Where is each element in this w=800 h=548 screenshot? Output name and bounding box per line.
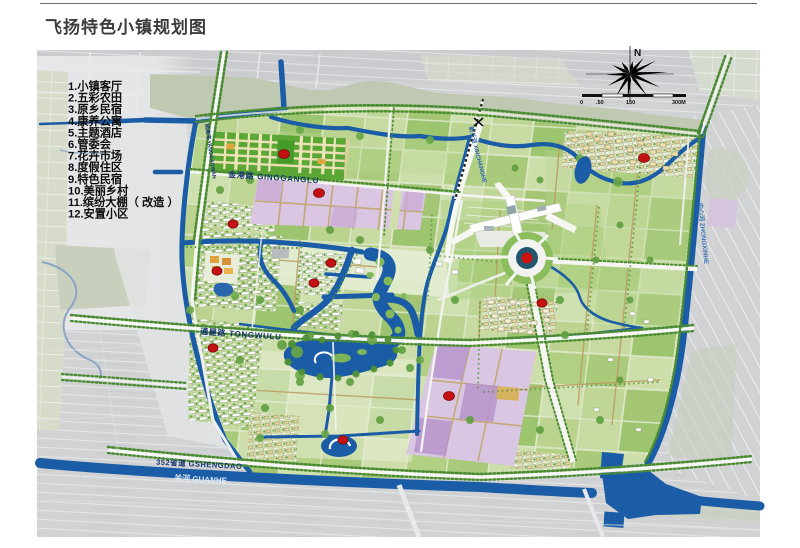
svg-text:10.美丽乡村: 10.美丽乡村: [68, 183, 129, 197]
svg-text:9.特色民宿: 9.特色民宿: [68, 172, 122, 186]
svg-text:N: N: [634, 48, 641, 59]
svg-text:150: 150: [626, 100, 635, 106]
svg-text:4.康养公寓: 4.康养公寓: [68, 114, 122, 128]
svg-text:12.安置小区: 12.安置小区: [68, 207, 128, 221]
svg-text:11.缤纷大棚（ 改造 ）: 11.缤纷大棚（ 改造 ）: [68, 195, 179, 209]
svg-text:0: 0: [580, 100, 583, 106]
svg-text:.50: .50: [596, 100, 604, 106]
svg-text:8.度假住区: 8.度假住区: [68, 160, 122, 174]
svg-text:1.小镇客厅: 1.小镇客厅: [68, 79, 122, 93]
svg-text:7.花卉市场: 7.花卉市场: [68, 149, 122, 163]
svg-text:6.管委会: 6.管委会: [68, 137, 112, 151]
svg-text:300M: 300M: [672, 100, 686, 106]
svg-text:3.原乡民宿: 3.原乡民宿: [68, 102, 122, 116]
svg-text:2.五彩农田: 2.五彩农田: [68, 91, 122, 105]
svg-text:5.主题酒店: 5.主题酒店: [68, 125, 122, 139]
